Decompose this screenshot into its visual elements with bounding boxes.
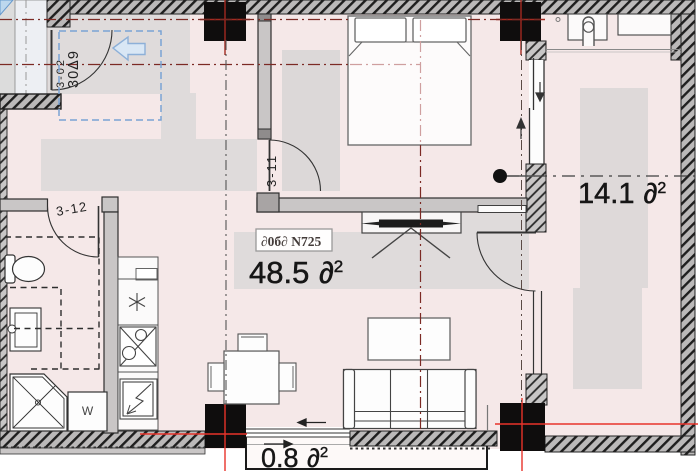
svg-text:W: W bbox=[82, 404, 94, 418]
svg-text:∂0б∂ N725: ∂0б∂ N725 bbox=[261, 234, 321, 249]
svg-text:0.8 ∂2: 0.8 ∂2 bbox=[261, 443, 328, 471]
svg-text:14.1 ∂2: 14.1 ∂2 bbox=[578, 178, 666, 210]
svg-text:48.5 ∂2: 48.5 ∂2 bbox=[249, 255, 343, 290]
svg-text:30Δ9: 30Δ9 bbox=[66, 50, 82, 88]
svg-text:3-11: 3-11 bbox=[264, 154, 279, 187]
